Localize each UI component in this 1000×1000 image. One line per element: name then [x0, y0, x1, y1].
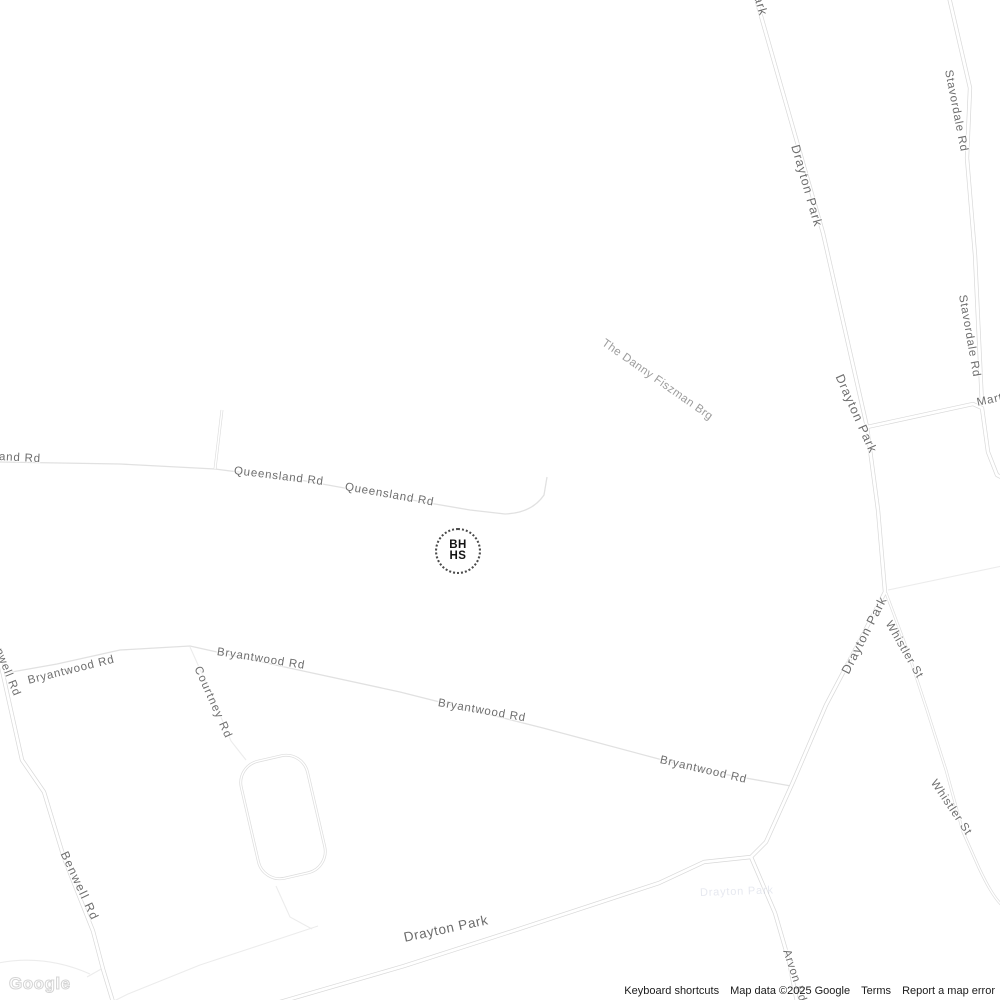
path-near-logo [0, 960, 90, 974]
poi-marker-line2: HS [450, 551, 467, 562]
poi-marker-bhhs-label: BH HS [449, 540, 467, 562]
road-loop-fill [236, 751, 329, 883]
poi-marker-bhhs[interactable]: BH HS [435, 528, 481, 574]
road-queensland-stub [215, 410, 222, 469]
report-map-error-link[interactable]: Report a map error [902, 985, 995, 997]
ghost-label-drayton-park: Drayton Park [700, 883, 774, 900]
main-road-fills [0, 0, 1000, 1000]
map-attribution-bar: Keyboard shortcuts Map data ©2025 Google… [624, 985, 995, 997]
main-road-casings [0, 0, 1000, 1000]
minor-roads [0, 462, 791, 786]
path-southwest-diagonal [112, 926, 318, 1000]
road-benwell-rd [0, 652, 113, 1000]
road-network [0, 0, 1000, 1000]
google-logo[interactable]: Google [9, 974, 71, 994]
path-loop-connector-south [276, 886, 312, 929]
road-loop-casing [236, 751, 329, 883]
path-junction-northeast [888, 566, 1000, 590]
road-label-queensland-rd-left: and Rd [0, 450, 41, 466]
map-canvas[interactable]: arkDrayton ParkStavordale RdStavordale R… [0, 0, 1000, 1000]
track-loop [236, 751, 329, 883]
keyboard-shortcuts-button[interactable]: Keyboard shortcuts [624, 985, 719, 997]
road-martineau-rd [867, 404, 1000, 478]
road-martineau-rd-casing [867, 404, 1000, 478]
path-benwell-stub [87, 968, 103, 977]
map-data-copyright: Map data ©2025 Google [730, 985, 850, 997]
terms-link[interactable]: Terms [861, 985, 891, 997]
